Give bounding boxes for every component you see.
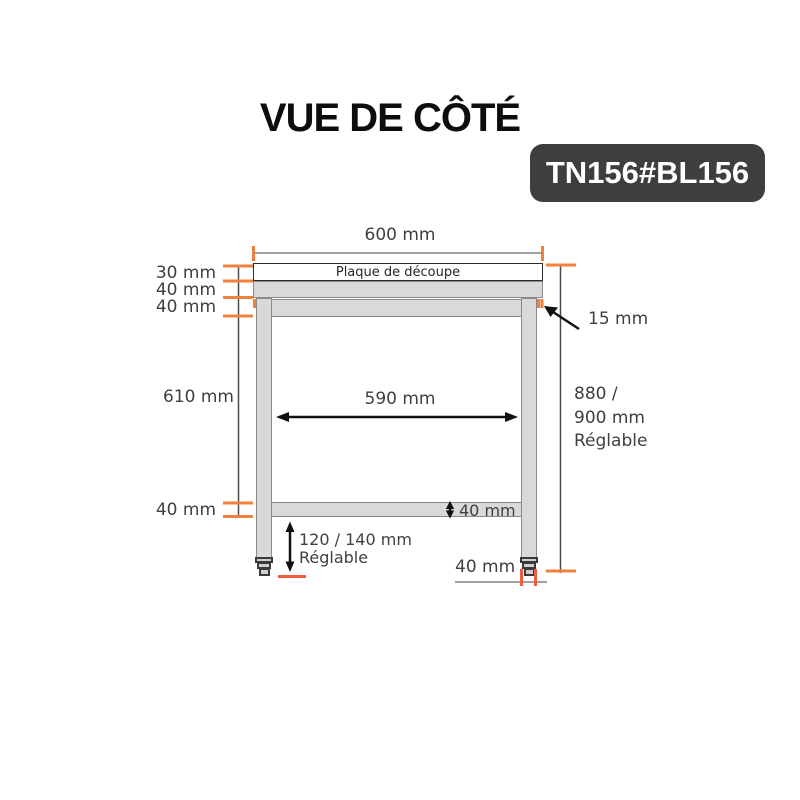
dim-shelf-left: 40 mm (140, 502, 216, 519)
dim-overhang: 15 mm (588, 311, 648, 328)
dim-line-600 (253, 246, 543, 261)
worktop-slab (253, 281, 543, 298)
spec-sheet: VUE DE CÔTÉ TN156#BL156 Plaque de découp… (0, 0, 800, 800)
right-foot-base (524, 568, 535, 576)
side-view-diagram: Plaque de découpe (0, 0, 800, 800)
dim-foot-height-note: Réglable (299, 549, 368, 567)
right-dim-line (546, 265, 576, 573)
dim-foot-height: 120 / 140 mm (299, 531, 412, 549)
dim-rail-height: 40 mm (140, 299, 216, 316)
dim-foot-width: 40 mm (455, 559, 515, 576)
dim-total-height-line3: Réglable (574, 433, 647, 457)
right-leg (521, 298, 537, 558)
left-foot-base (259, 568, 270, 576)
dim-inner-width: 590 mm (350, 391, 450, 408)
cutting-board-label: Plaque de découpe (336, 265, 460, 280)
left-leg (256, 298, 272, 558)
inner-width-arrow (276, 412, 518, 422)
dim-leg-height: 610 mm (163, 389, 234, 406)
dim-total-height-line2: 900 mm (574, 410, 647, 434)
dim-shelf-thickness: 40 mm (459, 502, 516, 520)
dim-slab-height: 40 mm (140, 282, 216, 299)
cutting-board: Plaque de découpe (253, 263, 543, 281)
dim-top-width: 600 mm (350, 227, 450, 244)
dim-total-height: 880 / 900 mm Réglable (574, 386, 647, 457)
dim-total-height-line1: 880 / (574, 386, 647, 410)
top-rail (271, 299, 522, 317)
overhang-callout-arrow (544, 306, 579, 329)
